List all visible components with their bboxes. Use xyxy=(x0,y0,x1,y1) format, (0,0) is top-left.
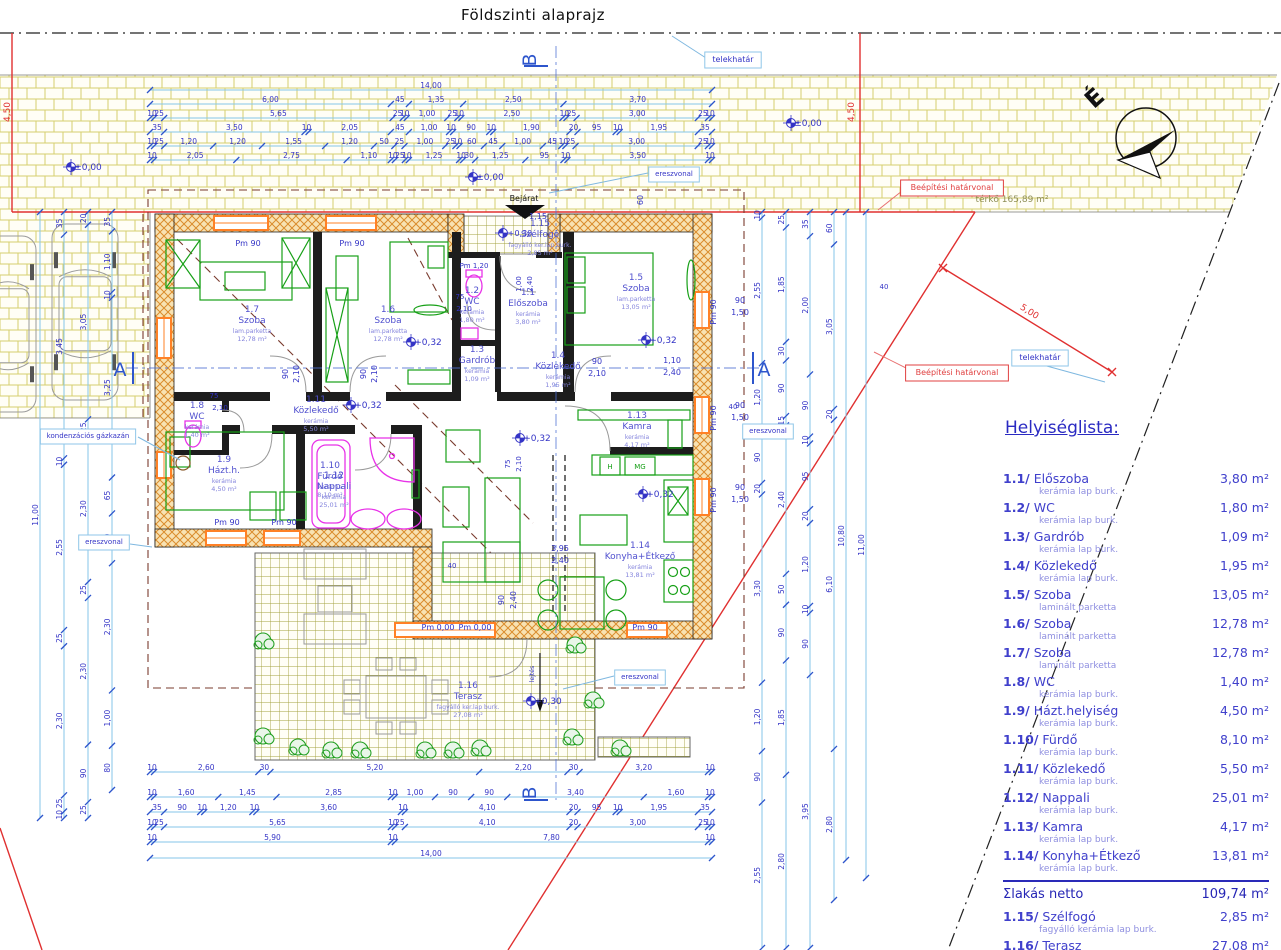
room-list-item: 1.6/Szoba12,78 m² xyxy=(1003,617,1269,631)
annotation-label: 4,50 xyxy=(847,102,857,122)
dim-label: 1,00 xyxy=(421,123,438,132)
annotation-label: ±0,00 xyxy=(74,163,102,173)
dim-label: 35 xyxy=(152,123,162,132)
dim-label: 45 xyxy=(488,137,498,146)
dim-label: 25 xyxy=(79,805,88,815)
room-area: 12,78 m² xyxy=(373,335,403,343)
dim-label: 35 xyxy=(700,123,710,132)
room-name: Gardrób xyxy=(459,355,496,366)
dim-label: 1,20 xyxy=(220,803,237,812)
room-label: 1.1Előszobakerámia3,80 m² xyxy=(508,288,548,326)
annotation-label: 90 xyxy=(359,369,368,379)
room-label: 1.8WCkerámia1,40 m² xyxy=(184,401,210,439)
room-finish: kerámia xyxy=(516,311,541,318)
annotation-label: 3,95 xyxy=(551,544,569,553)
annotation-label: +0,32 xyxy=(354,401,382,411)
room-finish: fagyálló ker.lap burk. xyxy=(436,704,499,711)
room-finish: laminált parketta xyxy=(1039,632,1269,642)
dimension-chain: 351,10103,2565902,301,0080 xyxy=(103,209,115,793)
room-name: Előszoba xyxy=(508,299,548,309)
dim-label: 20 xyxy=(753,484,762,494)
annotation-label: 75 xyxy=(210,392,219,400)
annotation-label: Pm 90 xyxy=(709,299,718,324)
room-finish: kerámia lap burk. xyxy=(1039,487,1269,497)
dim-label: 45 xyxy=(547,137,557,146)
room-area: 3,80 m² xyxy=(1220,472,1269,486)
dim-label: 25 xyxy=(55,798,64,808)
annotation-label: 2,10 xyxy=(212,404,228,412)
dimension-chain: 3590101,20103,60104,102095101,9535 xyxy=(147,803,715,815)
room-number: 1.6 xyxy=(381,305,396,315)
dim-label: 5,20 xyxy=(366,763,383,772)
room-finish: fagyálló ker.lap burk. xyxy=(508,242,571,249)
annotation-label: 2,40 xyxy=(663,368,681,377)
paved-areas xyxy=(0,75,1277,418)
dim-label: 35 xyxy=(700,803,710,812)
annotation-label: MG xyxy=(634,463,645,471)
dim-label: 1,25 xyxy=(426,151,443,160)
dim-label: 1,20 xyxy=(753,389,762,406)
room-number: 1.7 xyxy=(245,305,259,315)
dim-label: 3,50 xyxy=(629,151,646,160)
room-name: Közlekedő xyxy=(293,406,339,416)
room-list-item: 1.16/Terasz27,08 m² xyxy=(1003,939,1269,950)
annotation-label: +0,32 xyxy=(649,336,677,346)
dim-label: 3,25 xyxy=(103,379,112,396)
dim-label: 1,90 xyxy=(523,123,540,132)
dim-label: 2,50 xyxy=(505,95,522,104)
dim-label: 50 xyxy=(777,584,786,594)
room-number: 1.13 xyxy=(627,411,647,421)
room-area: 1,95 m² xyxy=(1220,559,1269,573)
annotation-label: +0,32 xyxy=(646,490,674,500)
dim-label: 2,40 xyxy=(777,491,786,508)
total-area: 109,74 m² xyxy=(1202,887,1270,902)
dim-label: 2,30 xyxy=(103,618,112,635)
room-finish: kerámia lap burk. xyxy=(1039,864,1269,874)
dim-label: 30 xyxy=(569,763,579,772)
dim-label: 35 xyxy=(55,218,64,228)
room-area: 27,08 m² xyxy=(453,711,483,719)
annotation-label: Pm 90 xyxy=(632,623,657,632)
room-list-item: 1.4/Közlekedő1,95 m² xyxy=(1003,559,1269,573)
room-finish: kerámia lap burk. xyxy=(1039,806,1269,816)
room-area: 8,10 m² xyxy=(1220,733,1269,747)
annotation-label: ±0,00 xyxy=(794,119,822,129)
dim-label: 80 xyxy=(103,763,112,773)
dim-label: 95 xyxy=(592,803,602,812)
dim-label: 90 xyxy=(466,123,476,132)
room-name: WC xyxy=(189,412,204,422)
room-name: Szoba xyxy=(622,284,649,294)
dim-label: 1,00 xyxy=(407,788,424,797)
dim-label: 4,10 xyxy=(479,803,496,812)
dim-label: 90 xyxy=(753,452,762,462)
room-finish: laminált parketta xyxy=(1039,603,1269,613)
dim-label: 35 xyxy=(103,217,112,227)
dim-label: 5,65 xyxy=(270,109,287,118)
dim-label: 35 xyxy=(152,803,162,812)
annotation-label: 1,10 xyxy=(663,356,681,365)
plant xyxy=(584,692,604,708)
dim-label: 5,90 xyxy=(264,833,281,842)
dim-label: 10 xyxy=(55,810,64,820)
annotation-label: 1,50 xyxy=(731,308,749,317)
room-area: 1,40 m² xyxy=(1220,675,1269,689)
annotation-label: 2,40 xyxy=(509,591,518,609)
dim-label: 25 xyxy=(79,585,88,595)
section-marker-a: A xyxy=(114,359,127,381)
annotation-label: ereszvonal xyxy=(655,170,693,178)
room-finish: kerámia lap burk. xyxy=(1039,690,1269,700)
dim-label: 1,20 xyxy=(229,137,246,146)
annotation-label: telekhatár xyxy=(712,55,754,64)
dim-label: 2,20 xyxy=(515,763,532,772)
dim-label: 25 xyxy=(566,137,576,146)
room-area: 12,78 m² xyxy=(1212,646,1269,660)
dim-label: 45 xyxy=(395,123,405,132)
annotation-label: 90 xyxy=(281,369,290,379)
room-area: 13,81 m² xyxy=(625,571,655,579)
dim-label: 2,05 xyxy=(187,151,204,160)
annotation-label: kondenzációs gázkazán xyxy=(47,432,130,440)
dim-label: 3,45 xyxy=(55,338,64,355)
room-name: Közlekedő xyxy=(535,362,581,372)
section-marker-b: B xyxy=(519,53,541,66)
room-list-item: 1.15/Szélfogó2,85 m² xyxy=(1003,910,1269,924)
room-area: 5,50 m² xyxy=(1220,762,1269,776)
dim-label: 1,55 xyxy=(285,137,302,146)
annotation-label: 1,50 xyxy=(731,413,749,422)
dim-label: 4,10 xyxy=(479,818,496,827)
room-list-item: 1.8/WC1,40 m² xyxy=(1003,675,1269,689)
dim-label: 2,30 xyxy=(55,712,64,729)
annotation-label: Pm 90 xyxy=(339,239,364,248)
annotation-label: Pm 90 xyxy=(709,405,718,430)
dim-label: 2,30 xyxy=(79,663,88,680)
dim-label: 2,05 xyxy=(341,123,358,132)
annotation-label: Pm 90 xyxy=(214,518,239,527)
dim-label: 3,95 xyxy=(801,803,810,820)
dim-label: 2,75 xyxy=(283,151,300,160)
dimension-chain: 352,00901095201,2010903,95 xyxy=(801,209,813,950)
room-area: 13,81 m² xyxy=(1212,849,1269,863)
room-finish: kerámia xyxy=(185,424,210,431)
annotation-label: 40 xyxy=(448,562,457,570)
dim-label: 2,80 xyxy=(825,816,834,833)
dim-label: 1,10 xyxy=(360,151,377,160)
dim-label: 20 xyxy=(79,213,88,223)
dim-label: 90 xyxy=(777,628,786,638)
room-area: 25,01 m² xyxy=(1212,791,1269,805)
annotation-label: lejtés xyxy=(529,666,536,682)
room-name: Konyha+Étkező xyxy=(605,550,676,562)
dim-label: 90 xyxy=(177,803,187,812)
room-finish: lam.parketta xyxy=(617,296,656,303)
dim-label: 14,00 xyxy=(420,849,442,858)
total-label: Σlakás netto xyxy=(1003,887,1083,902)
dim-label: 90 xyxy=(753,772,762,782)
room-label: 1.3Gardróbkerámia1,09 m² xyxy=(459,345,496,383)
dim-label: 1,00 xyxy=(103,710,112,727)
annotation-label: Beépítési határvonal xyxy=(911,182,994,192)
annotation-label: 90 xyxy=(592,357,602,366)
room-label: 1.13Kamrakerámia4,17 m² xyxy=(622,411,651,449)
annotation-label: 5,00 xyxy=(1018,303,1041,322)
dimension-chain: 603,05206,102,80 xyxy=(825,209,837,903)
room-area: 1,09 m² xyxy=(464,375,490,383)
annotation-label: 60 xyxy=(636,195,645,205)
dim-label: 1,20 xyxy=(341,137,358,146)
dim-label: 3,50 xyxy=(226,123,243,132)
annotation-label: Pm 0,00 xyxy=(459,623,492,632)
room-area: 5,50 m² xyxy=(303,425,329,433)
room-name: Nappali xyxy=(317,482,351,492)
dim-label: 90 xyxy=(777,383,786,393)
room-area: 1,40 m² xyxy=(184,431,210,439)
room-area: 13,05 m² xyxy=(621,303,651,311)
dim-label: 60 xyxy=(467,137,477,146)
room-finish: kerámia xyxy=(625,434,650,441)
room-number: 1.16 xyxy=(458,681,478,691)
room-list-item: 1.14/Konyha+Étkező13,81 m² xyxy=(1003,849,1269,863)
room-list-item: 1.13/Kamra4,17 m² xyxy=(1003,820,1269,834)
dim-label: 1,35 xyxy=(428,95,445,104)
dim-label: 95 xyxy=(592,123,602,132)
room-label: 1.7Szobalam.parketta12,78 m² xyxy=(233,305,272,343)
room-list-item: 1.12/Nappali25,01 m² xyxy=(1003,791,1269,805)
dim-label: 90 xyxy=(801,639,810,649)
dim-label: 3,00 xyxy=(629,109,646,118)
room-area: 12,78 m² xyxy=(237,335,267,343)
dimension-chain: 102,60305,202,20303,2010 xyxy=(147,763,715,775)
annotation-label: 4,50 xyxy=(3,102,13,122)
annotation-label: 2,10 xyxy=(370,365,379,383)
annotation-label: ±0,00 xyxy=(476,173,504,183)
room-finish: kerámia xyxy=(304,418,329,425)
dim-label: 1,95 xyxy=(650,123,667,132)
room-list-item: 1.1/Előszoba3,80 m² xyxy=(1003,472,1269,486)
annotation-label: ereszvonal xyxy=(749,427,787,435)
section-marker-a: A xyxy=(758,359,771,381)
room-number: 1.4 xyxy=(551,351,566,361)
room-list-title: Helyiséglista: xyxy=(1005,418,1269,438)
dim-label: 1,60 xyxy=(178,788,195,797)
room-area: 3,80 m² xyxy=(515,318,541,326)
dim-label: 3,40 xyxy=(567,788,584,797)
dim-label: 1,85 xyxy=(777,276,786,293)
dim-label: 3,00 xyxy=(629,818,646,827)
dimension-chain: 101,601,452,85101,0090903,401,6010 xyxy=(147,788,715,800)
dim-label: 10 xyxy=(55,457,64,467)
annotation-label: Bejárat xyxy=(510,194,539,203)
annotation-label: 90 xyxy=(497,595,506,605)
dimension-chain: 10,80 xyxy=(837,209,849,863)
annotation-label: 1,15 xyxy=(529,212,547,221)
dim-label: 30 xyxy=(777,346,786,356)
dim-label: 3,00 xyxy=(628,137,645,146)
dim-label: 6,10 xyxy=(825,576,834,593)
room-area: 4,50 m² xyxy=(211,485,237,493)
dim-label: 1,00 xyxy=(417,137,434,146)
annotation-label: 1,00 xyxy=(515,276,523,292)
dim-label: 2,00 xyxy=(801,297,810,314)
dim-label: 3,30 xyxy=(753,580,762,597)
dimension-chain: 11,00 xyxy=(857,209,869,881)
dim-label: 10,80 xyxy=(837,525,846,547)
room-label: 1.4Közlekedőkerámia1,95 m² xyxy=(535,351,581,389)
annotation-label: térkő 165,89 m² xyxy=(975,194,1048,205)
room-area: 1,80 m² xyxy=(459,316,485,324)
room-list-item: 1.3/Gardrób1,09 m² xyxy=(1003,530,1269,544)
dim-label: 1,20 xyxy=(801,556,810,573)
dim-label: 3,05 xyxy=(825,318,834,335)
room-label: 1.5Szobalam.parketta13,05 m² xyxy=(617,273,656,311)
dim-label: 35 xyxy=(801,219,810,229)
dim-label: 20 xyxy=(569,803,579,812)
annotation-label: +0,30 xyxy=(534,697,562,707)
dim-label: 2,85 xyxy=(325,788,342,797)
dim-label: 30 xyxy=(260,763,270,772)
room-area: 1,80 m² xyxy=(1220,501,1269,515)
annotation-label: 75 xyxy=(456,293,465,301)
room-name: Kamra xyxy=(622,422,651,432)
room-list-item: 1.10/Fürdő8,10 m² xyxy=(1003,733,1269,747)
room-area: 2,85 m² xyxy=(527,249,553,257)
room-finish: kerámia xyxy=(465,368,490,375)
dim-label: 1,45 xyxy=(239,788,256,797)
room-name: Házt.h. xyxy=(208,466,240,476)
room-name: Terasz xyxy=(453,692,482,702)
annotation-label: 2,10 xyxy=(292,365,301,383)
room-area: 4,50 m² xyxy=(1220,704,1269,718)
dim-label: 65 xyxy=(103,490,112,500)
annotation-label: +0,32 xyxy=(523,434,551,444)
room-area: 1,09 m² xyxy=(1220,530,1269,544)
annotation-label: ereszvonal xyxy=(85,538,123,546)
dim-label: 25 xyxy=(567,109,577,118)
room-area: 2,85 m² xyxy=(1220,910,1269,924)
dim-label: 3,70 xyxy=(629,95,646,104)
room-number: 1.5 xyxy=(629,273,643,283)
room-list-item: 1.2/WC1,80 m² xyxy=(1003,501,1269,515)
dim-label: 20 xyxy=(801,511,810,521)
room-number: 1.2 xyxy=(465,286,479,296)
room-number: 1.11 xyxy=(306,395,326,405)
dim-label: 10 xyxy=(801,604,810,614)
annotation-label: Pm 0,00 xyxy=(422,623,455,632)
room-list-item: 1.11/Közlekedő5,50 m² xyxy=(1003,762,1269,776)
annotation-label: Beépítési határvonal xyxy=(916,367,999,377)
dim-label: 90 xyxy=(484,788,494,797)
room-finish: kerámia lap burk. xyxy=(1039,748,1269,758)
dim-label: 6,00 xyxy=(262,95,279,104)
dim-label: 3,60 xyxy=(320,803,337,812)
dim-label: 11,00 xyxy=(857,534,866,556)
room-finish: laminált parketta xyxy=(1039,661,1269,671)
room-finish: kerámia xyxy=(212,478,237,485)
room-number: 1.14 xyxy=(630,541,650,551)
dim-label: 1,25 xyxy=(492,151,509,160)
dim-label: 25 xyxy=(777,215,786,225)
room-finish: kerámia xyxy=(322,494,347,501)
room-name: Szoba xyxy=(374,316,401,326)
room-area: 1,95 m² xyxy=(545,381,571,389)
dimension-chain: 251,853090152,4050901,852,80 xyxy=(777,209,789,950)
drawing-title: Földszinti alaprajz xyxy=(0,6,1066,24)
room-area: 13,05 m² xyxy=(1212,588,1269,602)
dim-label: 95 xyxy=(540,151,550,160)
drawing-sheet: É 14,006,00451,352,503,7010255,6525101,0… xyxy=(0,0,1281,950)
room-list-item: 1.5/Szoba13,05 m² xyxy=(1003,588,1269,602)
annotation-label: +0,32 xyxy=(414,338,442,348)
dimension-chain: 14,00 xyxy=(147,849,715,861)
dim-label: 25 xyxy=(154,137,164,146)
annotation-label: Pm 90 xyxy=(709,487,718,512)
dim-label: 2,55 xyxy=(753,282,762,299)
dim-label: 1,10 xyxy=(103,253,112,270)
room-finish: kerámia xyxy=(628,564,653,571)
room-list-total: Σlakás netto 109,74 m² xyxy=(1003,880,1269,910)
room-area: 4,17 m² xyxy=(1220,820,1269,834)
room-finish: kerámia lap burk. xyxy=(1039,545,1269,555)
annotation-label: 90 xyxy=(735,483,745,492)
annotation-label: 2,40 xyxy=(551,556,569,565)
room-list-item: 1.9/Házt.helyiség4,50 m² xyxy=(1003,704,1269,718)
room-number: 1.9 xyxy=(217,455,232,465)
dimension-chain: 102,551,2090203,301,20902,55 xyxy=(753,209,765,950)
annotation-label: 1,50 xyxy=(731,495,749,504)
dim-label: 1,00 xyxy=(514,137,531,146)
dim-label: 60 xyxy=(825,223,834,233)
room-finish: lam.parketta xyxy=(369,328,408,335)
annotation-label: 2,10 xyxy=(588,369,606,378)
annotation-label: 2,10 xyxy=(515,456,523,472)
room-list-extras: 1.15/Szélfogó2,85 m²fagyálló kerámia lap… xyxy=(1003,910,1269,950)
dim-label: 25 xyxy=(154,109,164,118)
dim-label: 14,00 xyxy=(420,81,442,90)
dim-label: 2,80 xyxy=(777,853,786,870)
room-number: 1.12 xyxy=(324,471,344,481)
room-label: 1.6Szobalam.parketta12,78 m² xyxy=(369,305,408,343)
room-finish: kerámia lap burk. xyxy=(1039,719,1269,729)
room-finish: kerámia lap burk. xyxy=(1039,516,1269,526)
dim-label: 20 xyxy=(569,818,579,827)
room-finish: kerámia xyxy=(546,374,571,381)
dim-label: 2,50 xyxy=(504,109,521,118)
room-finish: kerámia lap burk. xyxy=(1039,777,1269,787)
dim-label: 2,55 xyxy=(55,539,64,556)
annotation-label: 40 xyxy=(729,403,738,411)
dim-label: 45 xyxy=(395,95,405,104)
dim-label: 25 xyxy=(55,633,64,643)
section-marker-b: B xyxy=(519,786,541,799)
dim-label: 1,60 xyxy=(668,788,685,797)
dim-label: 2,55 xyxy=(753,867,762,884)
annotation-label: 40 xyxy=(880,283,889,291)
dim-label: 2,30 xyxy=(79,500,88,517)
dim-label: 25 xyxy=(395,818,405,827)
room-finish: kerámia lap burk. xyxy=(1039,835,1269,845)
dim-label: 11,00 xyxy=(31,504,40,526)
dim-label: 90 xyxy=(801,401,810,411)
annotation-label: 90 xyxy=(735,296,745,305)
dim-label: 25 xyxy=(395,137,405,146)
dim-label: 1,95 xyxy=(650,803,667,812)
dimension-chain: 105,90107,8010 xyxy=(147,833,715,845)
room-list-item: 1.7/Szoba12,78 m² xyxy=(1003,646,1269,660)
dim-label: 1,85 xyxy=(777,709,786,726)
